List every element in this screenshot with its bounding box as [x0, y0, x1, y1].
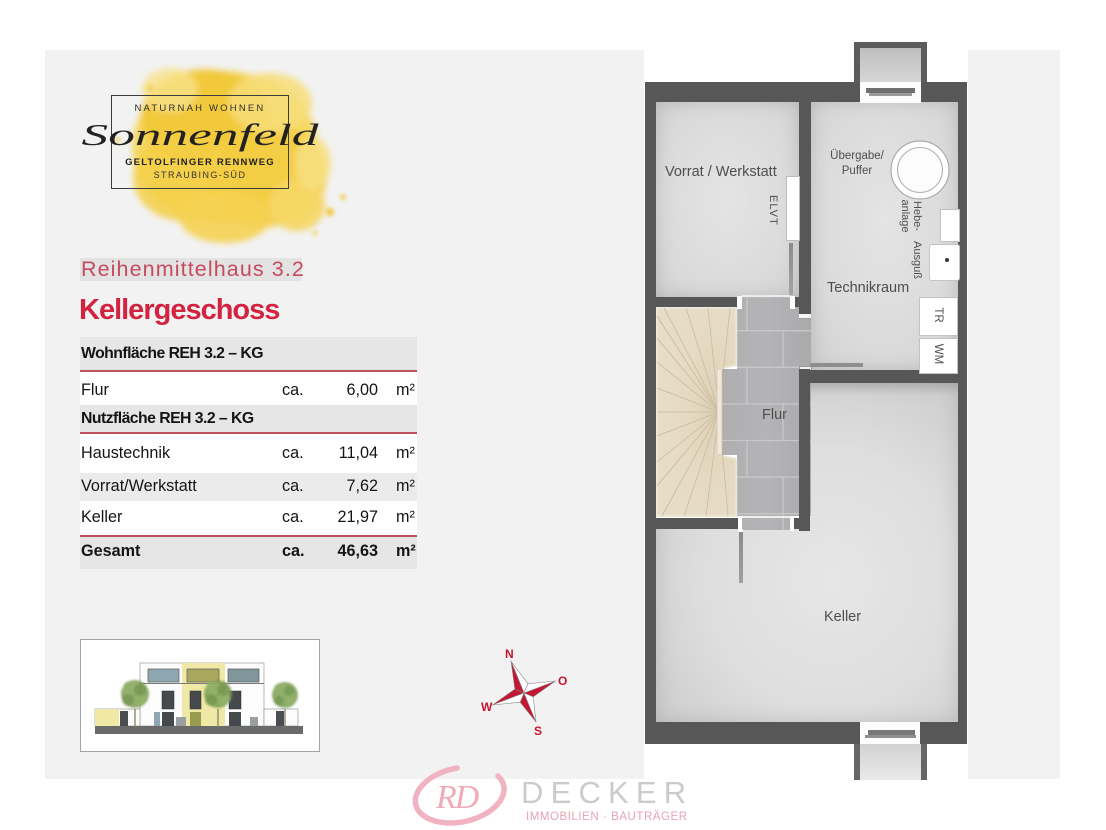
svg-text:N: N: [505, 647, 514, 661]
svg-text:RD: RD: [435, 779, 480, 816]
svg-text:W: W: [481, 700, 493, 714]
svg-text:O: O: [558, 674, 567, 688]
svg-text:S: S: [534, 724, 542, 738]
